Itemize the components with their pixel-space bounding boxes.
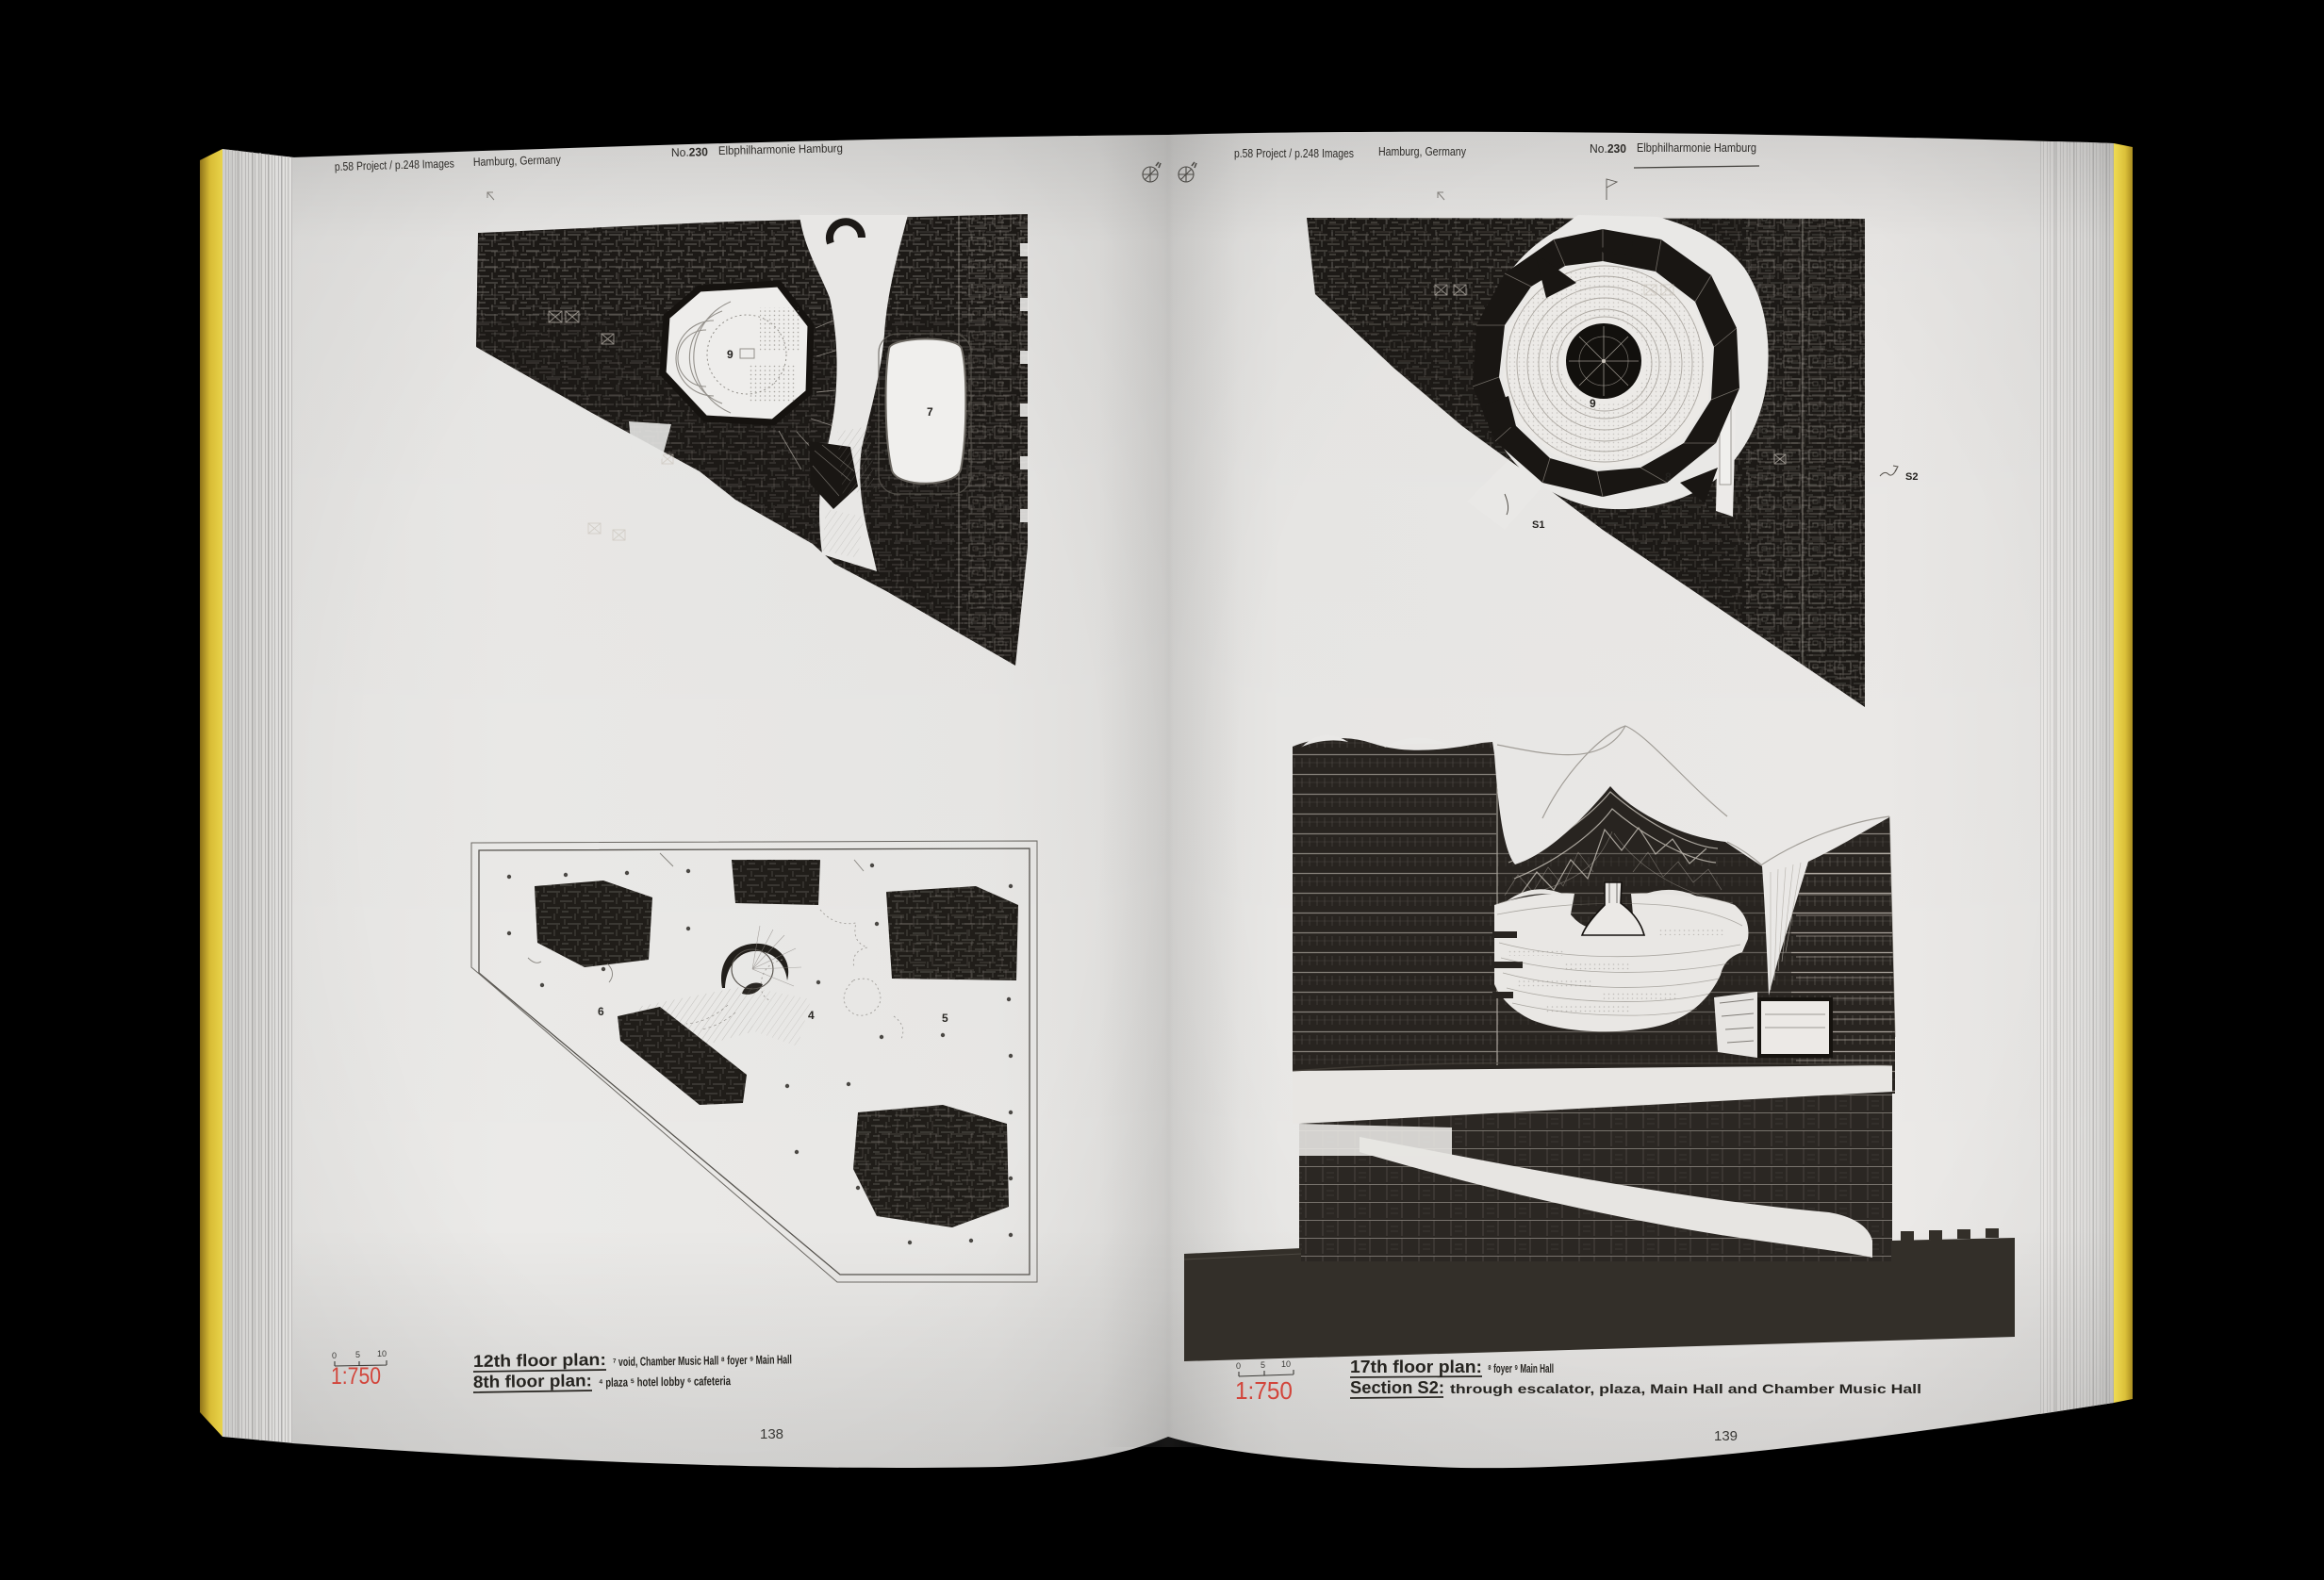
svg-text:6: 6 <box>598 1005 604 1018</box>
svg-text:5: 5 <box>355 1350 360 1359</box>
svg-text:⁴ plaza ⁵ hotel lobby ⁶ cafete: ⁴ plaza ⁵ hotel lobby ⁶ cafeteria <box>599 1374 732 1390</box>
svg-text:p.58 Project / p.248 Images: p.58 Project / p.248 Images <box>1234 147 1354 160</box>
svg-text:Elbphilharmonie Hamburg: Elbphilharmonie Hamburg <box>1637 141 1756 155</box>
svg-text:139: 139 <box>1714 1428 1738 1444</box>
svg-text:12th floor plan:: 12th floor plan: <box>473 1350 606 1371</box>
svg-text:0: 0 <box>332 1351 337 1360</box>
svg-text:4: 4 <box>808 1009 815 1022</box>
svg-text:8: 8 <box>813 518 819 531</box>
svg-text:1:750: 1:750 <box>331 1363 381 1390</box>
svg-text:8th floor plan:: 8th floor plan: <box>473 1371 592 1391</box>
svg-text:⁸ foyer ⁹ Main Hall: ⁸ foyer ⁹ Main Hall <box>1488 1361 1554 1375</box>
svg-text:9: 9 <box>1590 397 1596 410</box>
svg-text:0: 0 <box>1236 1361 1241 1371</box>
svg-text:138: 138 <box>760 1426 783 1442</box>
svg-text:10: 10 <box>377 1349 387 1358</box>
svg-text:S2: S2 <box>1905 471 1918 483</box>
svg-text:⁷ void, Chamber Music Hall ⁸ f: ⁷ void, Chamber Music Hall ⁸ foyer ⁹ Mai… <box>613 1352 792 1369</box>
svg-text:Hamburg, Germany: Hamburg, Germany <box>1378 145 1467 158</box>
svg-text:7: 7 <box>927 405 933 419</box>
svg-text:Section S2:: Section S2: <box>1350 1378 1444 1397</box>
svg-text:1:750: 1:750 <box>1235 1376 1293 1405</box>
svg-text:No.230: No.230 <box>1590 142 1626 156</box>
svg-text:9: 9 <box>727 348 733 361</box>
svg-text:8: 8 <box>1665 470 1672 484</box>
svg-text:No.230: No.230 <box>671 145 708 159</box>
svg-text:5: 5 <box>942 1012 948 1025</box>
svg-text:5: 5 <box>1261 1360 1265 1370</box>
svg-text:10: 10 <box>1281 1359 1291 1369</box>
svg-text:17th floor plan:: 17th floor plan: <box>1350 1358 1482 1376</box>
svg-text:Hamburg, Germany: Hamburg, Germany <box>473 153 562 169</box>
svg-text:S1: S1 <box>1532 519 1544 531</box>
svg-text:through escalator, plaza, Main: through escalator, plaza, Main Hall and … <box>1450 1381 1921 1396</box>
svg-text:Elbphilharmonie Hamburg: Elbphilharmonie Hamburg <box>718 141 843 157</box>
